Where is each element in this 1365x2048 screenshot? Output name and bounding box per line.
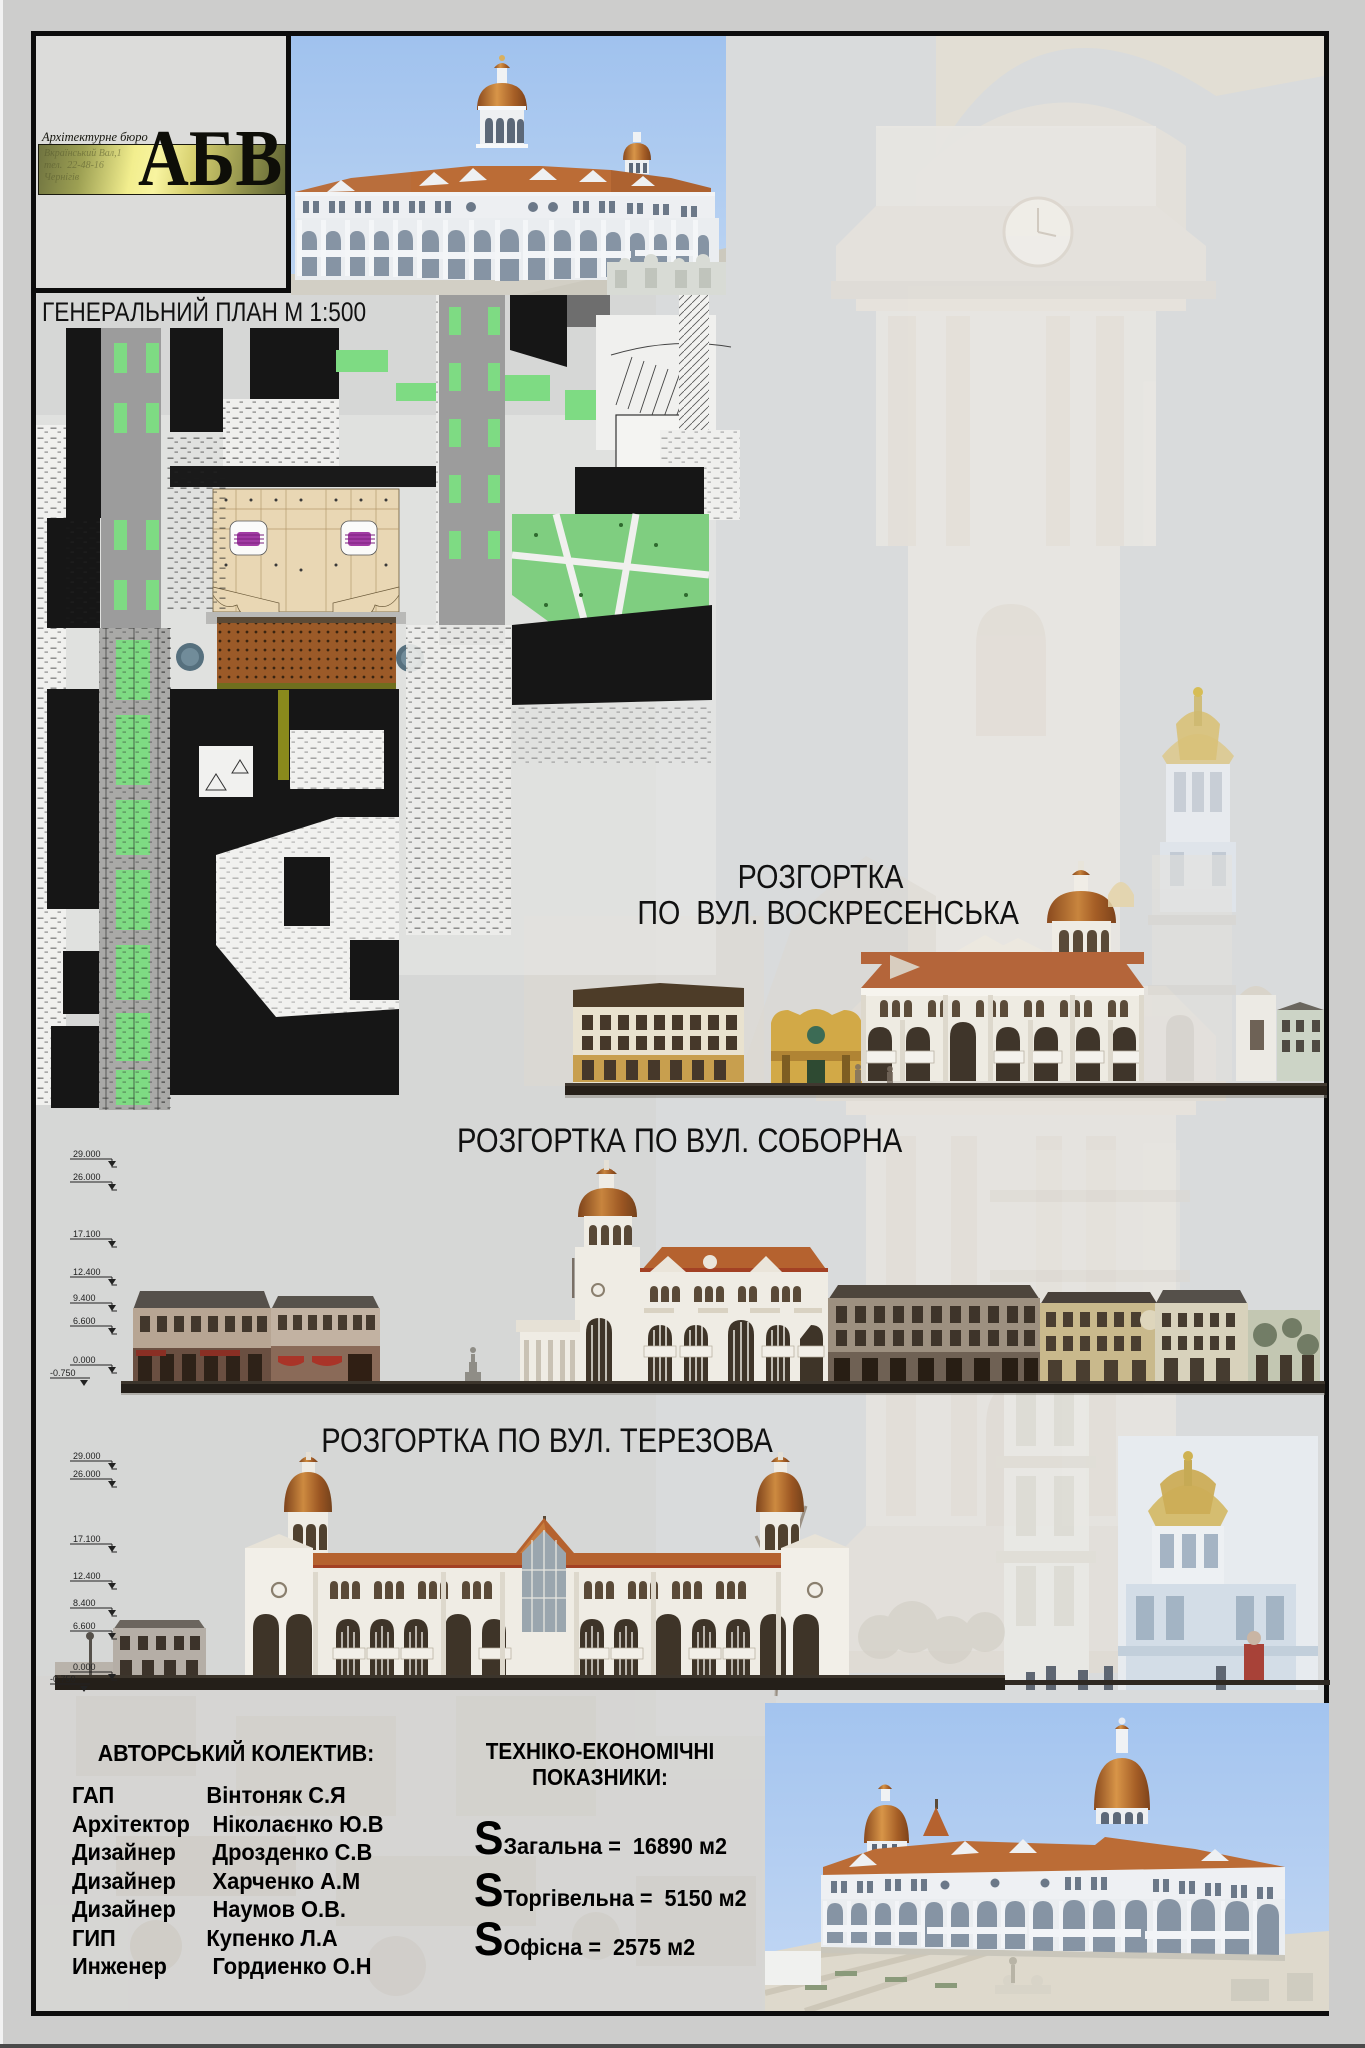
svg-text:8.400: 8.400 bbox=[73, 1598, 96, 1608]
svg-text:0.000: 0.000 bbox=[73, 1662, 96, 1672]
svg-text:-0.750: -0.750 bbox=[50, 1674, 76, 1684]
svg-text:17.100: 17.100 bbox=[73, 1534, 101, 1544]
svg-text:12.400: 12.400 bbox=[73, 1267, 101, 1277]
svg-text:26.000: 26.000 bbox=[73, 1172, 101, 1182]
svg-text:0.000: 0.000 bbox=[73, 1355, 96, 1365]
svg-text:6.600: 6.600 bbox=[73, 1621, 96, 1631]
svg-text:-0.750: -0.750 bbox=[50, 1368, 76, 1378]
svg-text:26.000: 26.000 bbox=[73, 1469, 101, 1479]
svg-text:6.600: 6.600 bbox=[73, 1316, 96, 1326]
svg-text:12.400: 12.400 bbox=[73, 1571, 101, 1581]
svg-text:29.000: 29.000 bbox=[73, 1451, 101, 1461]
svg-text:17.100: 17.100 bbox=[73, 1229, 101, 1239]
svg-text:9.400: 9.400 bbox=[73, 1293, 96, 1303]
svg-text:29.000: 29.000 bbox=[73, 1149, 101, 1159]
